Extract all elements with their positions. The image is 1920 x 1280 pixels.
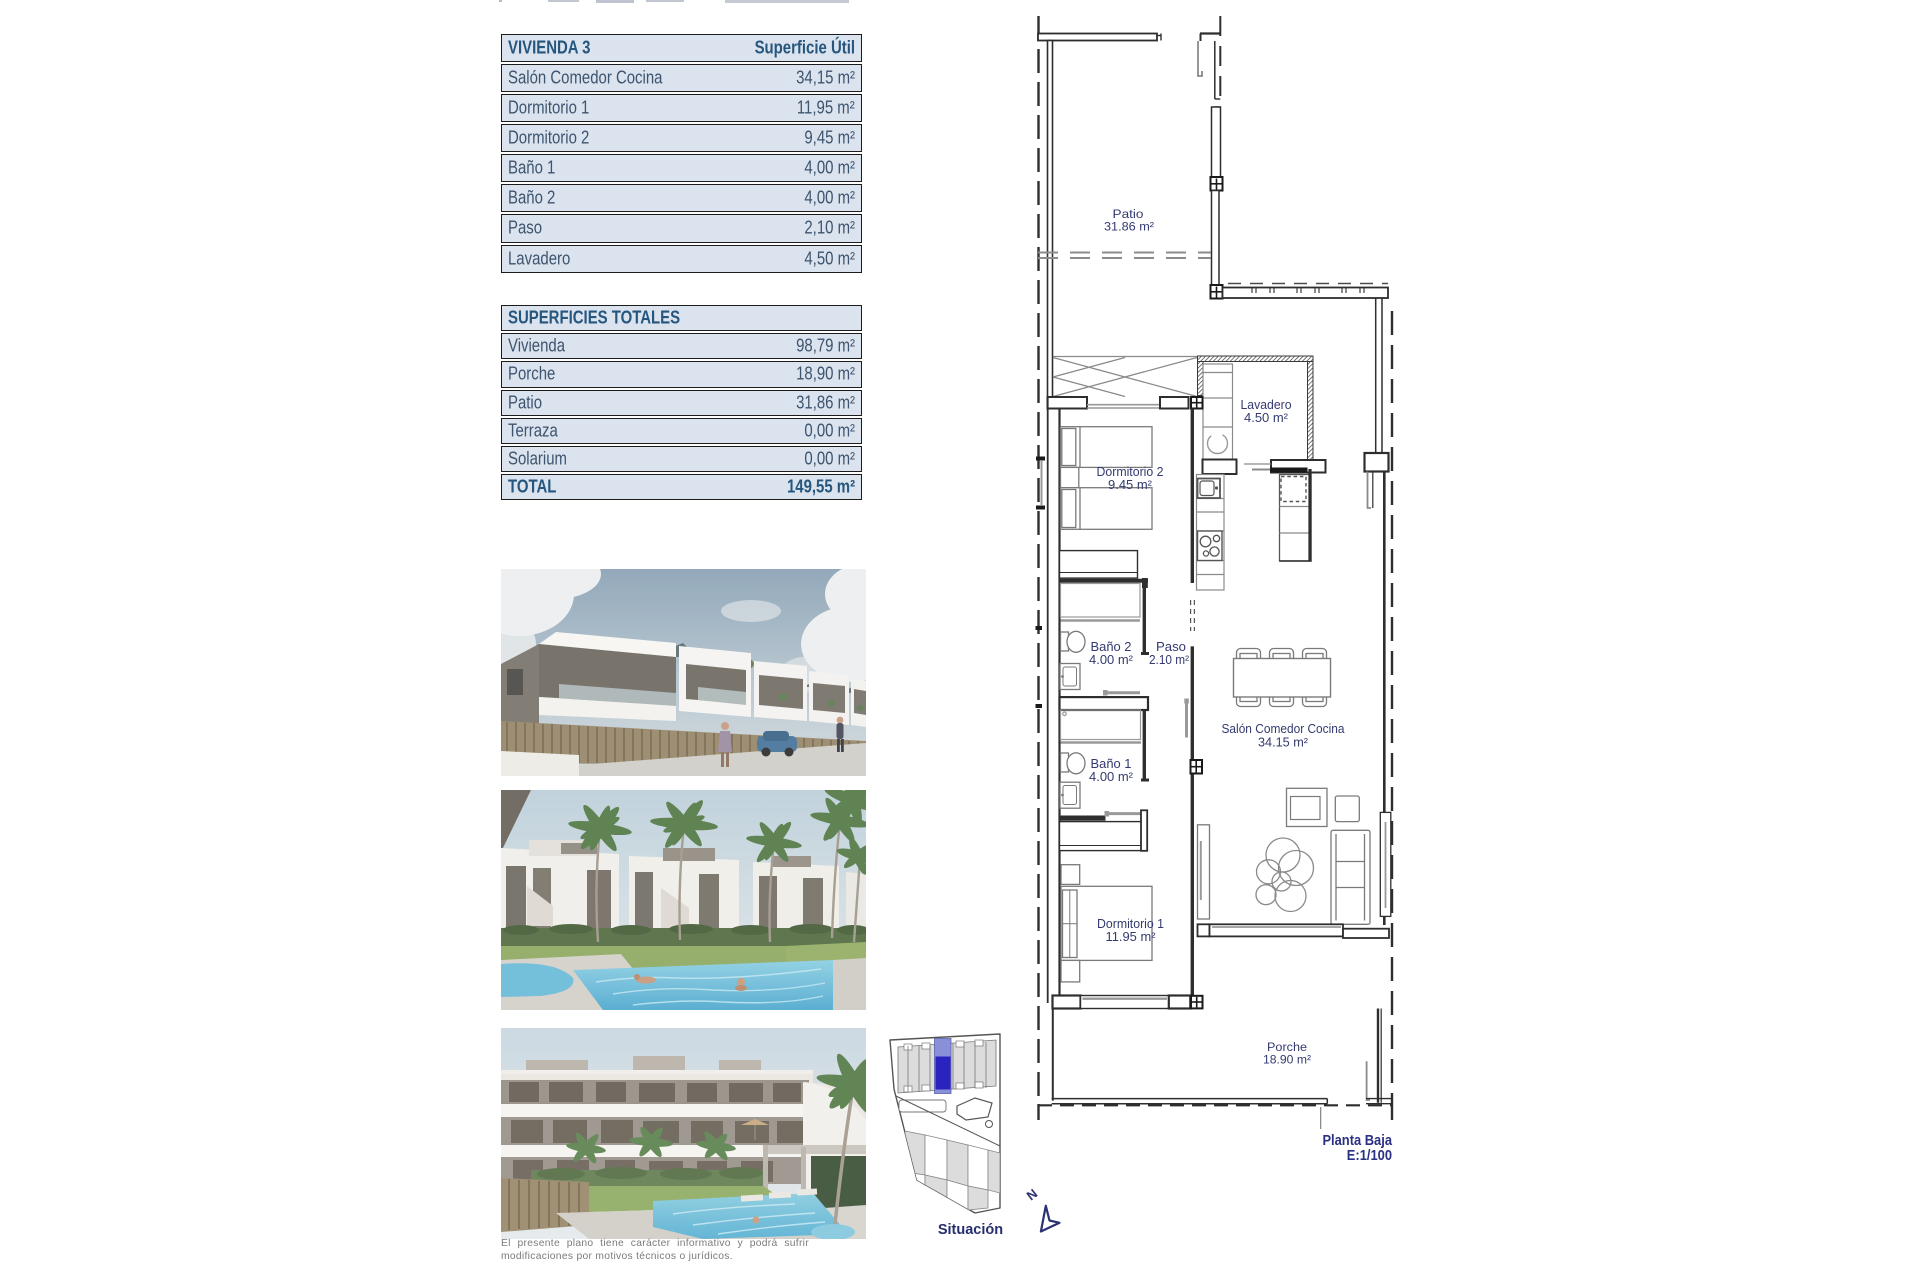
- svg-text:9.45 m²: 9.45 m²: [1108, 477, 1153, 492]
- svg-text:2.10 m²: 2.10 m²: [1149, 652, 1190, 667]
- svg-text:18.90 m²: 18.90 m²: [1263, 1053, 1311, 1067]
- svg-text:4.00 m²: 4.00 m²: [1089, 652, 1134, 667]
- svg-text:4.00 m²: 4.00 m²: [1089, 769, 1134, 784]
- svg-text:34.15 m²: 34.15 m²: [1258, 735, 1309, 750]
- svg-text:31.86 m²: 31.86 m²: [1104, 220, 1154, 234]
- svg-text:11.95 m²: 11.95 m²: [1106, 929, 1157, 944]
- svg-text:4.50 m²: 4.50 m²: [1244, 410, 1289, 425]
